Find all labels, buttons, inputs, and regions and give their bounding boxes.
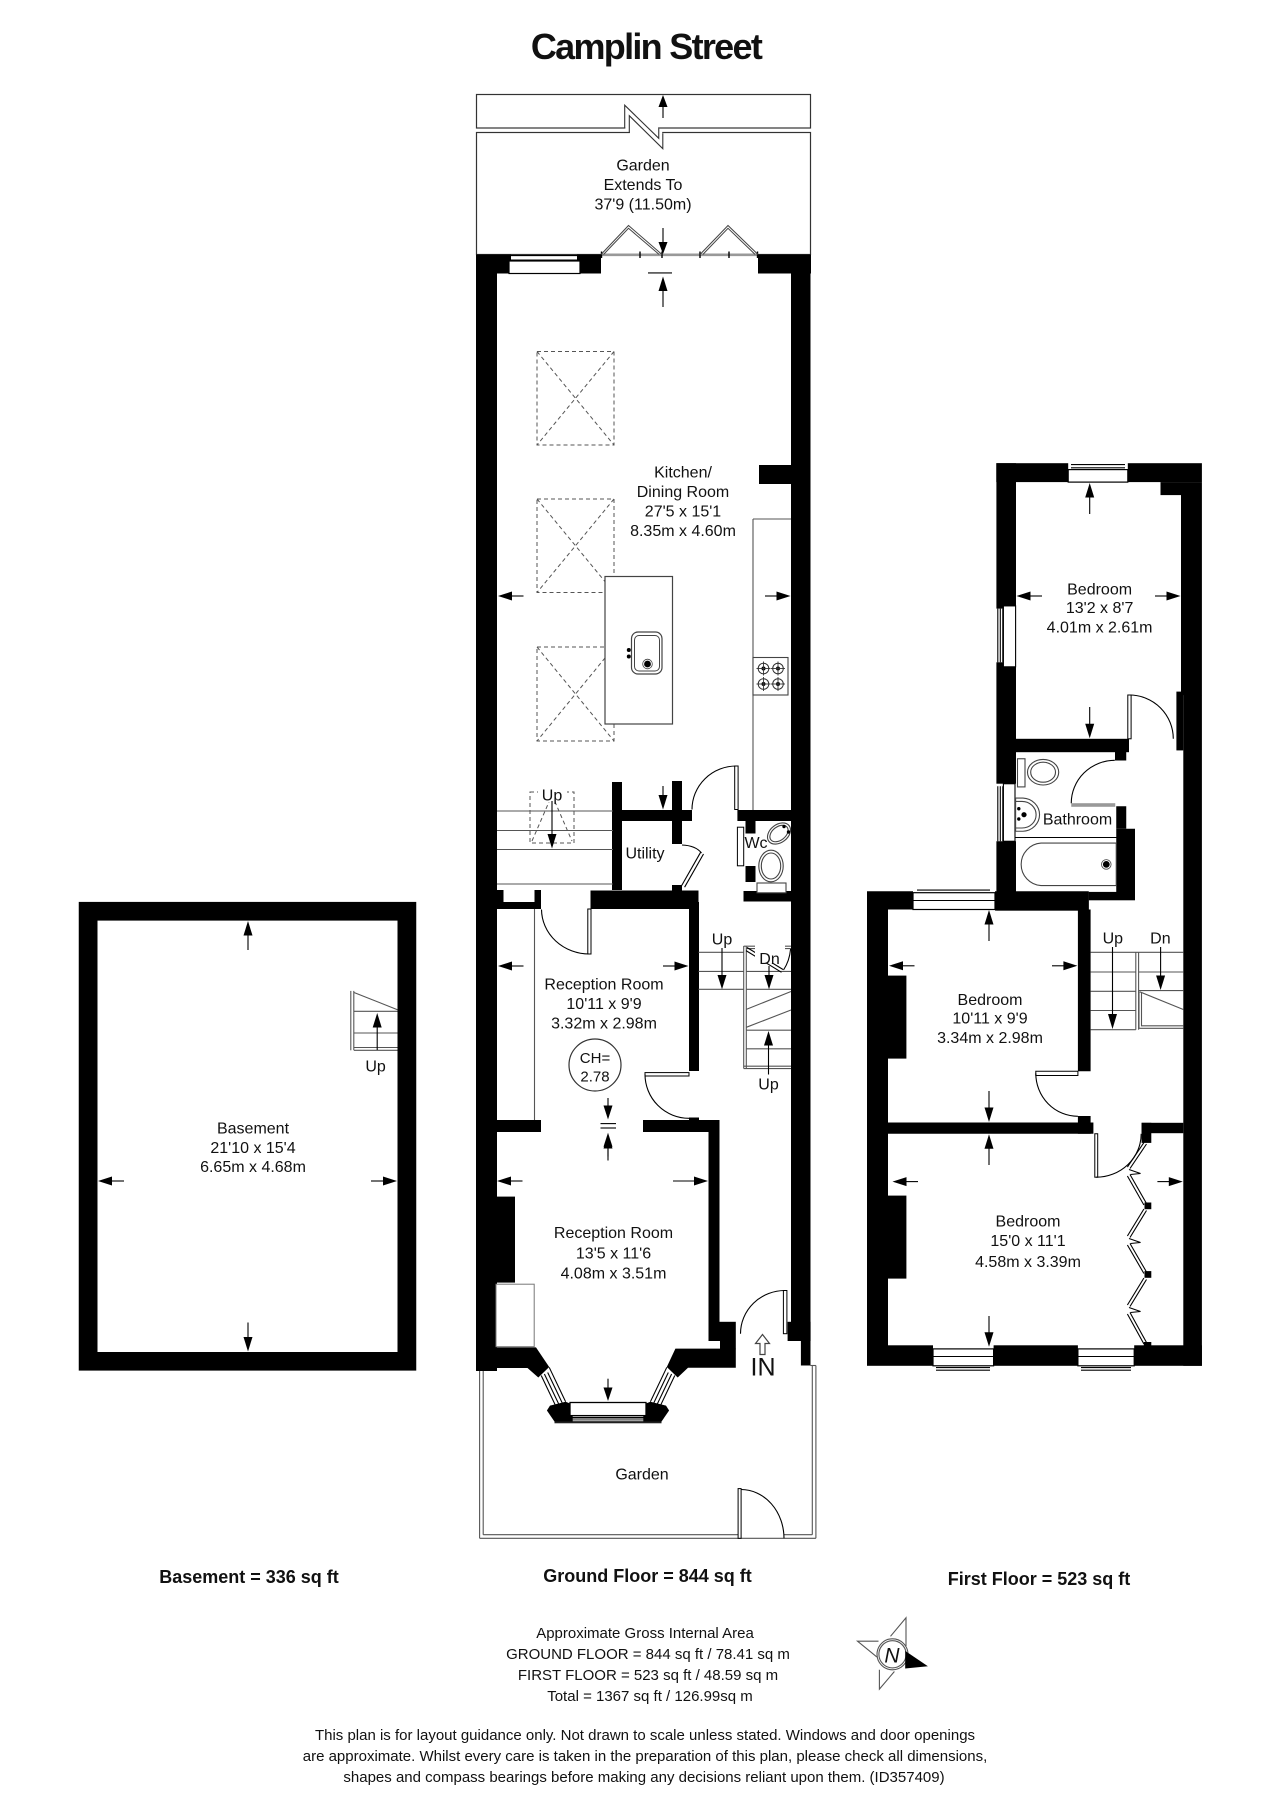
- svg-text:Bedroom: Bedroom: [996, 1214, 1061, 1231]
- svg-text:6.65m x 4.68m: 6.65m x 4.68m: [200, 1159, 306, 1176]
- svg-text:Bathroom: Bathroom: [1043, 812, 1112, 829]
- svg-text:21'10 x 15'4: 21'10 x 15'4: [210, 1140, 295, 1157]
- svg-text:8.35m x 4.60m: 8.35m x 4.60m: [630, 523, 736, 540]
- svg-text:shapes and compass bearings be: shapes and compass bearings before makin…: [343, 1769, 944, 1786]
- svg-text:Up: Up: [1103, 931, 1124, 948]
- svg-text:Garden: Garden: [616, 158, 669, 175]
- svg-text:4.58m x 3.39m: 4.58m x 3.39m: [975, 1254, 1081, 1271]
- svg-text:3.34m x 2.98m: 3.34m x 2.98m: [937, 1030, 1043, 1047]
- svg-text:27'5 x 15'1: 27'5 x 15'1: [645, 504, 721, 521]
- svg-text:GROUND FLOOR = 844 sq ft / 78.: GROUND FLOOR = 844 sq ft / 78.41 sq m: [506, 1646, 790, 1663]
- svg-text:Total = 1367 sq ft / 126.99sq: Total = 1367 sq ft / 126.99sq m: [547, 1688, 753, 1705]
- svg-text:Basement = 336 sq ft: Basement = 336 sq ft: [159, 1567, 339, 1587]
- svg-text:Bedroom: Bedroom: [1067, 582, 1132, 599]
- svg-text:37'9 (11.50m): 37'9 (11.50m): [594, 197, 691, 214]
- svg-text:Camplin Street: Camplin Street: [531, 26, 763, 67]
- svg-text:Reception Room: Reception Room: [554, 1225, 673, 1242]
- svg-text:Garden: Garden: [615, 1467, 668, 1484]
- svg-text:IN: IN: [751, 1354, 776, 1382]
- svg-text:Reception Room: Reception Room: [544, 977, 663, 994]
- svg-text:N: N: [884, 1645, 900, 1668]
- svg-text:FIRST FLOOR = 523 sq ft / 48.5: FIRST FLOOR = 523 sq ft / 48.59 sq m: [518, 1667, 778, 1684]
- svg-text:3.32m x 2.98m: 3.32m x 2.98m: [551, 1016, 657, 1033]
- svg-text:15'0 x 11'1: 15'0 x 11'1: [990, 1233, 1065, 1250]
- svg-text:Kitchen/: Kitchen/: [654, 465, 712, 482]
- svg-text:Up: Up: [712, 932, 733, 949]
- svg-text:Ground Floor = 844 sq ft: Ground Floor = 844 sq ft: [543, 1566, 752, 1586]
- svg-text:Dn: Dn: [759, 951, 779, 968]
- svg-text:13'5 x 11'6: 13'5 x 11'6: [576, 1246, 651, 1263]
- svg-text:Extends To: Extends To: [604, 177, 683, 194]
- svg-text:2.78: 2.78: [580, 1069, 609, 1086]
- svg-text:Approximate Gross Internal Are: Approximate Gross Internal Area: [536, 1625, 754, 1642]
- svg-text:Wc: Wc: [744, 835, 767, 852]
- svg-text:Bedroom: Bedroom: [958, 992, 1023, 1009]
- svg-text:13'2 x 8'7: 13'2 x 8'7: [1066, 600, 1134, 617]
- svg-text:CH=: CH=: [580, 1050, 611, 1067]
- svg-text:Dining Room: Dining Room: [637, 484, 729, 501]
- svg-text:4.08m x 3.51m: 4.08m x 3.51m: [561, 1266, 667, 1283]
- svg-text:10'11 x 9'9: 10'11 x 9'9: [952, 1010, 1027, 1027]
- svg-text:Up: Up: [365, 1059, 386, 1076]
- svg-text:This plan is for layout guidan: This plan is for layout guidance only. N…: [315, 1727, 975, 1744]
- svg-text:4.01m x 2.61m: 4.01m x 2.61m: [1047, 620, 1153, 637]
- svg-text:Basement: Basement: [217, 1121, 290, 1138]
- svg-text:First Floor = 523 sq ft: First Floor = 523 sq ft: [948, 1569, 1131, 1589]
- svg-text:Utility: Utility: [625, 846, 664, 863]
- svg-text:10'11 x 9'9: 10'11 x 9'9: [566, 996, 641, 1013]
- svg-text:are approximate. Whilst every: are approximate. Whilst every care is ta…: [303, 1748, 988, 1765]
- svg-text:Up: Up: [758, 1077, 779, 1094]
- svg-text:Dn: Dn: [1150, 931, 1170, 948]
